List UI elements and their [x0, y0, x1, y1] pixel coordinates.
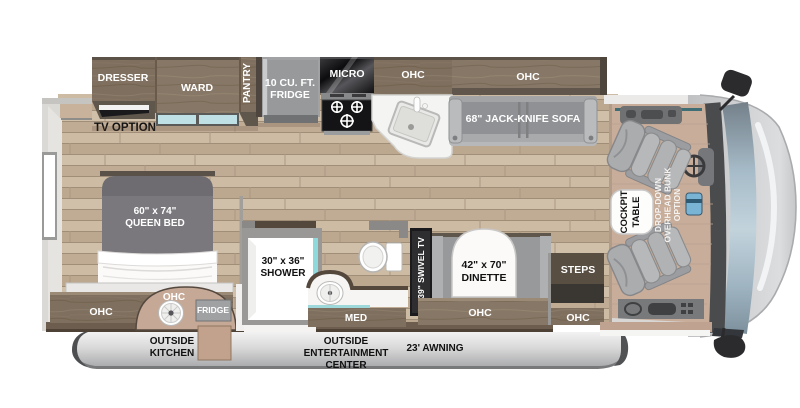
svg-text:23' AWNING: 23' AWNING [406, 343, 463, 354]
svg-text:PANTRY: PANTRY [242, 63, 253, 103]
svg-text:OUTSIDE: OUTSIDE [150, 336, 195, 347]
svg-text:OUTSIDE: OUTSIDE [324, 336, 369, 347]
svg-text:OPTION: OPTION [672, 189, 682, 222]
svg-text:STEPS: STEPS [561, 264, 595, 276]
svg-text:DRESSER: DRESSER [98, 72, 149, 84]
svg-text:42" x 70": 42" x 70" [462, 259, 507, 271]
svg-text:68" JACK-KNIFE SOFA: 68" JACK-KNIFE SOFA [466, 113, 581, 125]
svg-text:ENTERTAINMENT: ENTERTAINMENT [304, 348, 389, 359]
svg-text:FRIDGE: FRIDGE [197, 305, 229, 315]
svg-text:FRIDGE: FRIDGE [270, 89, 310, 101]
svg-text:SHOWER: SHOWER [261, 268, 307, 279]
svg-text:MED: MED [345, 313, 367, 324]
svg-text:60" x 74": 60" x 74" [134, 206, 177, 217]
svg-text:30" x 36": 30" x 36" [262, 256, 305, 267]
svg-text:OHC: OHC [516, 71, 540, 83]
svg-text:COCKPIT: COCKPIT [619, 190, 630, 233]
svg-text:KITCHEN: KITCHEN [150, 348, 194, 359]
svg-text:39" SWIVEL TV: 39" SWIVEL TV [416, 237, 426, 299]
svg-text:MICRO: MICRO [330, 68, 365, 80]
svg-text:WARD: WARD [181, 82, 213, 94]
svg-text:OVERHEAD BUNK: OVERHEAD BUNK [663, 167, 673, 243]
svg-text:DROP-DOWN: DROP-DOWN [653, 178, 663, 232]
svg-text:OHC: OHC [566, 312, 590, 324]
svg-text:QUEEN BED: QUEEN BED [125, 218, 184, 229]
svg-text:OHC: OHC [401, 69, 425, 81]
svg-text:CENTER: CENTER [325, 360, 367, 371]
svg-text:OHC: OHC [468, 307, 492, 319]
svg-text:OHC: OHC [89, 306, 113, 318]
svg-text:10 CU. FT.: 10 CU. FT. [265, 77, 315, 89]
svg-text:DINETTE: DINETTE [462, 272, 507, 284]
svg-text:TABLE: TABLE [631, 197, 642, 228]
